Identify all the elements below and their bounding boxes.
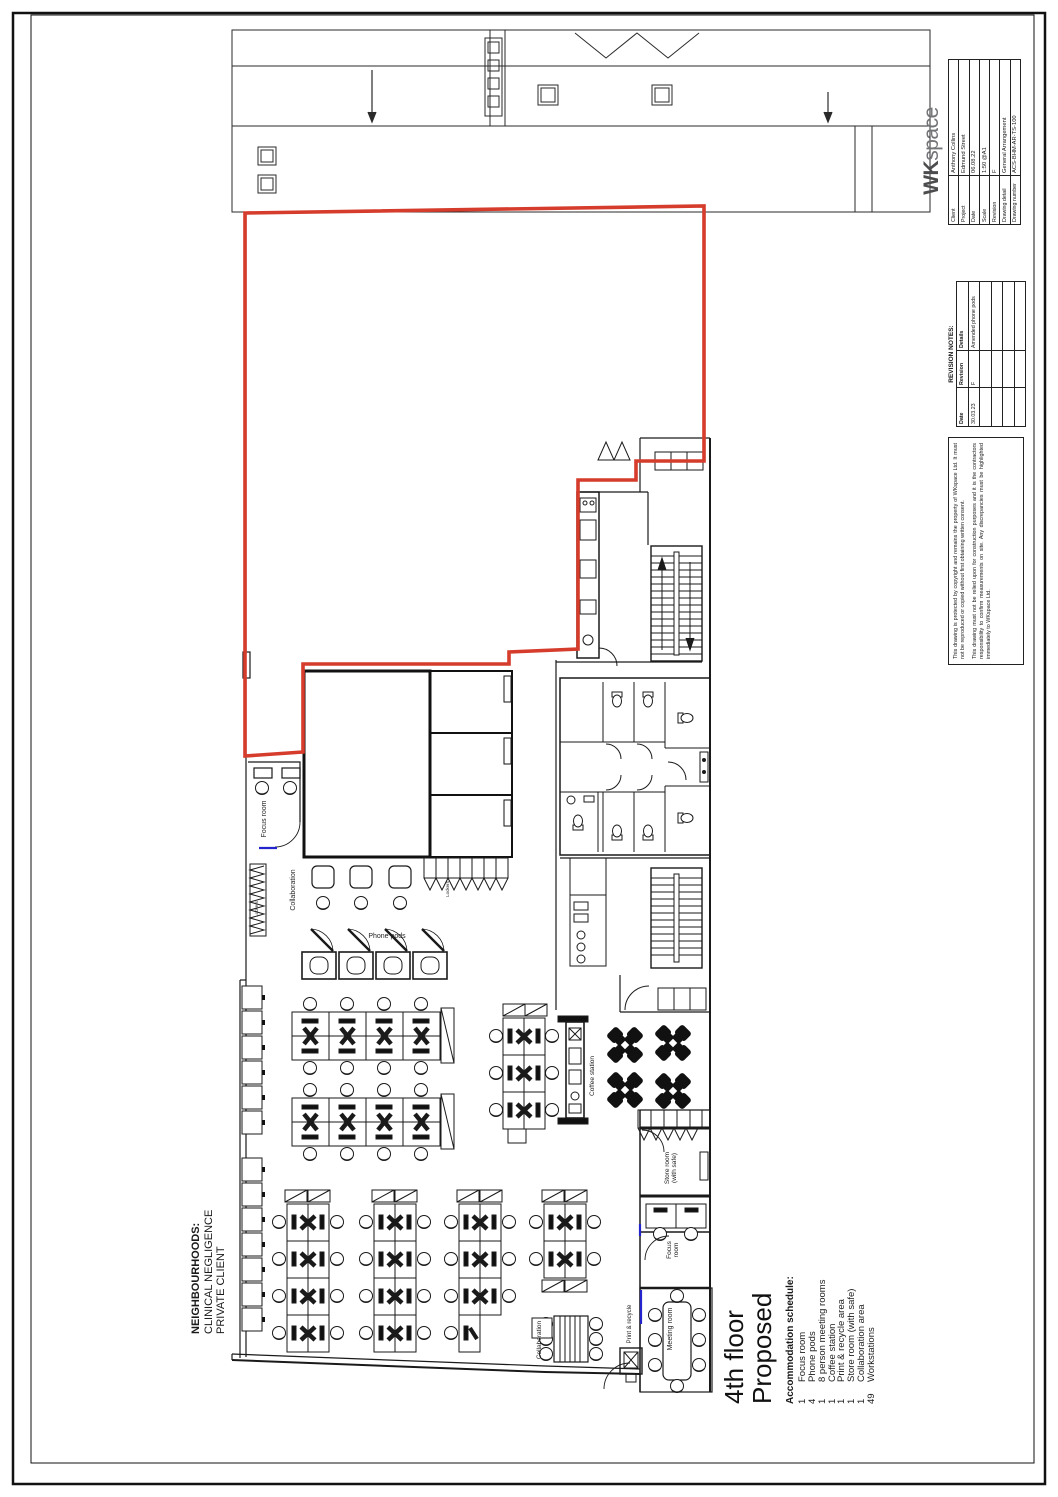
schedule-item: 49Workstations xyxy=(867,1226,877,1404)
field-label: Revision xyxy=(990,175,999,224)
label-lockers-mid: Lockers xyxy=(446,877,451,901)
copyright-para-2: This drawing must not be relied upon for… xyxy=(972,443,993,659)
desk-bank-lower-1 xyxy=(273,1190,344,1352)
lift-lobby xyxy=(625,986,706,1010)
collaboration-area-top xyxy=(312,866,411,910)
staircase-bottom xyxy=(651,868,702,968)
neighbourhoods-heading: NEIGHBOURHOODS: xyxy=(190,1192,203,1334)
core xyxy=(560,442,710,1010)
label-phone-pods: Phone pods xyxy=(352,933,422,941)
field-label: Drawing number xyxy=(1011,175,1020,224)
drawing-sheet: { "title_block": { "logo": {"wk": "WK", … xyxy=(0,0,1058,1497)
label-collaboration-bottom: Collaboration xyxy=(536,1310,543,1370)
copyright-para-1: This drawing is protected by copyright a… xyxy=(953,443,967,659)
focus-room-top xyxy=(248,762,300,847)
revision-notes-title: REVISION NOTES: xyxy=(948,281,955,427)
label-meeting-room: Meeting room xyxy=(667,1306,675,1352)
neighbourhoods-line: PRIVATE CLIENT xyxy=(215,1192,228,1334)
cupboard-row-left xyxy=(242,986,265,1331)
label-store-room: Store room (with safe) xyxy=(664,1146,678,1190)
col-date: Date xyxy=(957,387,968,426)
label-collaboration-top: Collaboration xyxy=(290,856,298,924)
breakout-clusters xyxy=(606,1024,692,1110)
field-label: Drawing detail xyxy=(1000,175,1009,224)
col-revision: Revision xyxy=(957,350,968,387)
rev-date: 30.03.23 xyxy=(969,387,980,426)
revision-row-empty xyxy=(992,282,1004,426)
field-label: Project xyxy=(959,175,968,224)
entrance-lobby xyxy=(598,442,703,470)
desk-bank-upper-a xyxy=(292,998,454,1075)
field-row: Drawing numberACS-BHM-AR-TS-100 xyxy=(1011,60,1020,224)
col-details: Details xyxy=(959,282,965,350)
copyright-note: This drawing is protected by copyright a… xyxy=(948,437,1024,665)
rev-details: Amended phone pods xyxy=(971,282,977,350)
neighbourhoods-line: CLINICAL NEGLIGENCE xyxy=(203,1192,216,1334)
desk-bank-lower-2 xyxy=(360,1190,431,1352)
field-label: Client xyxy=(949,175,958,224)
field-value: Edmund Street xyxy=(961,134,967,175)
label-focus-room-top: Focus room xyxy=(261,797,269,841)
adjacent-roof-plan xyxy=(232,30,930,212)
label-coffee-station: Coffee station xyxy=(589,1048,596,1104)
field-row: RevisionF xyxy=(990,60,1000,224)
desk-bank-upper-c xyxy=(490,1004,559,1143)
wkspace-logo: WKspace xyxy=(920,85,946,217)
field-row: ProjectEdmund Street xyxy=(959,60,969,224)
sheet-border xyxy=(13,13,1045,1484)
label-print-recycle: Print & recycle xyxy=(627,1301,633,1347)
floor-plan-canvas xyxy=(0,0,1058,1497)
desk-bank-lower-4 xyxy=(530,1190,601,1292)
desk-bank-upper-b xyxy=(292,1084,454,1161)
neighbourhoods-note: NEIGHBOURHOODS: CLINICAL NEGLIGENCE PRIV… xyxy=(190,1192,228,1334)
kitchen-counter xyxy=(577,492,617,666)
title-block: WKspace ClientAnthony Collins ProjectEdm… xyxy=(920,55,1020,695)
field-value: ACS-BHM-AR-TS-100 xyxy=(1012,115,1018,175)
coffee-station xyxy=(558,1016,588,1124)
field-value: 06.08.22 xyxy=(971,150,977,175)
label-focus-room-bottom: Focus room xyxy=(666,1236,680,1264)
schedule-block: 4th floor Proposed Accommodation schedul… xyxy=(720,1226,877,1404)
label-lockers-left: Lockers xyxy=(255,894,260,924)
field-label: Scale xyxy=(980,175,989,224)
revision-row-empty xyxy=(980,282,992,426)
logo-wk: WK xyxy=(920,161,943,195)
toilets xyxy=(560,678,710,855)
revision-row-empty xyxy=(1015,282,1026,426)
revision-row-empty xyxy=(1003,282,1015,426)
title-block-fields: ClientAnthony Collins ProjectEdmund Stre… xyxy=(948,59,1021,225)
item-qty: 49 xyxy=(867,1382,877,1404)
field-label: Date xyxy=(970,175,979,224)
schedule-heading: Accommodation schedule: xyxy=(785,1226,796,1404)
status-title: Proposed xyxy=(748,1226,776,1404)
revision-header-row: Date Revision Details xyxy=(957,282,969,426)
rev-letter: F xyxy=(969,350,980,387)
revision-notes-table: Date Revision Details 30.03.23 F Amended… xyxy=(956,281,1026,427)
revision-notes: REVISION NOTES: Date Revision Details 30… xyxy=(948,281,1026,427)
demise-boundary-red xyxy=(245,206,704,756)
tea-point xyxy=(570,858,606,966)
field-row: Date06.08.22 xyxy=(970,60,980,224)
field-value: General Arrangement xyxy=(1002,118,1008,175)
field-value: Anthony Collins xyxy=(951,133,957,175)
field-value: F xyxy=(992,169,998,175)
logo-space: space xyxy=(920,107,943,161)
meeting-room-block xyxy=(304,671,512,857)
field-row: Scale1:50 @A1 xyxy=(980,60,990,224)
meeting-room-bottom xyxy=(649,1290,706,1393)
floor-title: 4th floor xyxy=(720,1226,748,1404)
field-value: 1:50 @A1 xyxy=(982,147,988,175)
field-row: ClientAnthony Collins xyxy=(949,60,959,224)
item-label: Workstations xyxy=(867,1327,877,1382)
field-row: Drawing detailGeneral Arrangement xyxy=(1000,60,1010,224)
roof-slope-arrow xyxy=(368,70,832,122)
staircase-top xyxy=(651,546,702,661)
revision-row: 30.03.23 F Amended phone pods xyxy=(969,282,981,426)
